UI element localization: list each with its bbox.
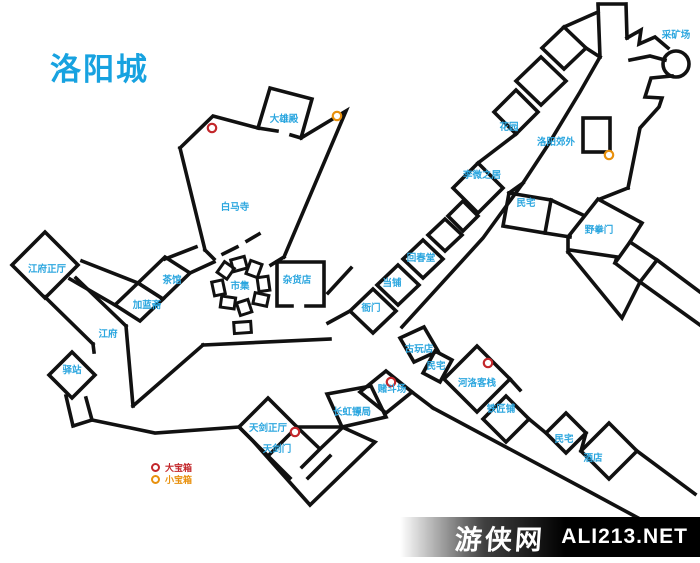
market-stall — [246, 260, 262, 277]
map-label-changhong-biaoju: 长虹镖局 — [333, 406, 371, 418]
big-chest-marker — [291, 428, 299, 436]
wall-wide-street-lower — [92, 420, 239, 433]
room-baimasi-outline — [180, 111, 346, 265]
map-label-huayuan: 花园 — [499, 121, 518, 133]
wall-se-street-ne — [510, 379, 695, 494]
market-stall — [212, 280, 226, 296]
map-label-yizhan: 驿站 — [62, 364, 82, 376]
wall-outskirts-corridor — [564, 4, 627, 57]
map-label-minzhai-mid: 民宅 — [426, 360, 446, 372]
map-label-chaguan: 茶馆 — [161, 274, 182, 286]
map-label-yamen: 衙门 — [360, 302, 380, 314]
map-label-zahuodian: 杂货店 — [283, 274, 312, 286]
market-stalls — [212, 256, 270, 333]
market-stall — [220, 296, 235, 309]
map-label-liwei-zhiju: 李微之居 — [462, 169, 502, 181]
wall-yamen-market — [328, 311, 350, 323]
market-stall — [257, 276, 270, 291]
map-label-luoyang-jiaowai: 洛阳郊外 — [537, 136, 576, 148]
room-daxiongdian-outline — [258, 88, 312, 138]
map-label-tianjian-zhengting: 天剑正厅 — [249, 422, 288, 434]
map-label-minzhai-south: 民宅 — [554, 433, 574, 445]
small-chest-marker — [333, 112, 341, 120]
map-label-jiudian: 酒店 — [583, 452, 603, 464]
market-stall — [236, 299, 251, 315]
wall-yizhan-stub — [66, 396, 92, 426]
map-label-guwandian: 古玩店 — [405, 343, 434, 355]
map-title: 洛阳城 — [50, 44, 149, 89]
treasure-markers — [208, 112, 613, 436]
map-label-heluo-kezhan: 河洛客栈 — [458, 377, 497, 389]
lone-stall — [234, 321, 252, 333]
map-label-tiejiangpu: 铁匠铺 — [487, 403, 516, 415]
map-label-yequanmen: 野拳门 — [585, 224, 614, 236]
map-label-jialanzhai: 加蓝斋 — [132, 299, 162, 311]
map-legend: 大宝箱 小宝箱 — [151, 461, 192, 485]
map-label-daxiongdian: 大雄殿 — [270, 113, 299, 125]
map-label-caikuangchang: 采矿场 — [661, 29, 691, 41]
wall-liwei-huayuan — [478, 134, 516, 163]
big-chest-marker — [208, 124, 216, 132]
map-label-shiji: 市集 — [230, 280, 250, 292]
big-chest-icon — [151, 463, 160, 472]
wall-jiangfu-corridor — [45, 278, 126, 352]
small-chest-icon — [151, 475, 160, 484]
room-yequan-se-outline — [615, 242, 657, 282]
big-chest-marker — [484, 359, 492, 367]
room-tianjianmen-outline — [239, 427, 375, 505]
legend-row-big-chest: 大宝箱 — [151, 461, 192, 473]
map-labels: 大雄殿白马寺采矿场花园洛阳郊外李微之居民宅野拳门回春堂当铺杂货店市集茶馆加蓝斋江… — [28, 29, 691, 464]
map-label-dangpu: 当铺 — [382, 277, 402, 289]
outskirts-building — [583, 118, 610, 152]
map-label-dudouchang: 赌斗场 — [377, 383, 407, 395]
wall-dudou-junction — [412, 392, 433, 408]
map-label-baimasi: 白马寺 — [221, 201, 250, 213]
room-jiudian-outline — [581, 423, 637, 479]
watermark-site-domain: ALI213.NET — [561, 525, 688, 549]
watermark-bar: 游侠网 ALI213.NET — [400, 517, 700, 557]
map-label-jiangfu-zhengting: 江府正厅 — [28, 263, 67, 275]
map-label-huichuntang: 回春堂 — [407, 252, 436, 264]
watermark-site-name: 游侠网 — [454, 518, 547, 557]
map-label-jiangfu: 江府 — [98, 328, 118, 340]
map-label-tianjianmen: 天剑门 — [263, 443, 292, 455]
room-yequanmen-outline — [568, 199, 642, 318]
mine-area-circle — [663, 51, 689, 77]
small-chest-marker — [605, 151, 613, 159]
wall-wide-street-left — [126, 326, 203, 406]
room-tiejiangpu-outline — [483, 396, 529, 442]
room-minzhai-south-outline — [546, 413, 586, 453]
market-stall — [253, 293, 269, 307]
wall-wide-street-upper — [203, 339, 330, 345]
small-chest-label: 小宝箱 — [165, 473, 192, 486]
map-label-minzhai-north: 民宅 — [516, 197, 536, 209]
wall-zahuodian-street — [328, 268, 351, 293]
legend-row-small-chest: 小宝箱 — [151, 473, 192, 485]
